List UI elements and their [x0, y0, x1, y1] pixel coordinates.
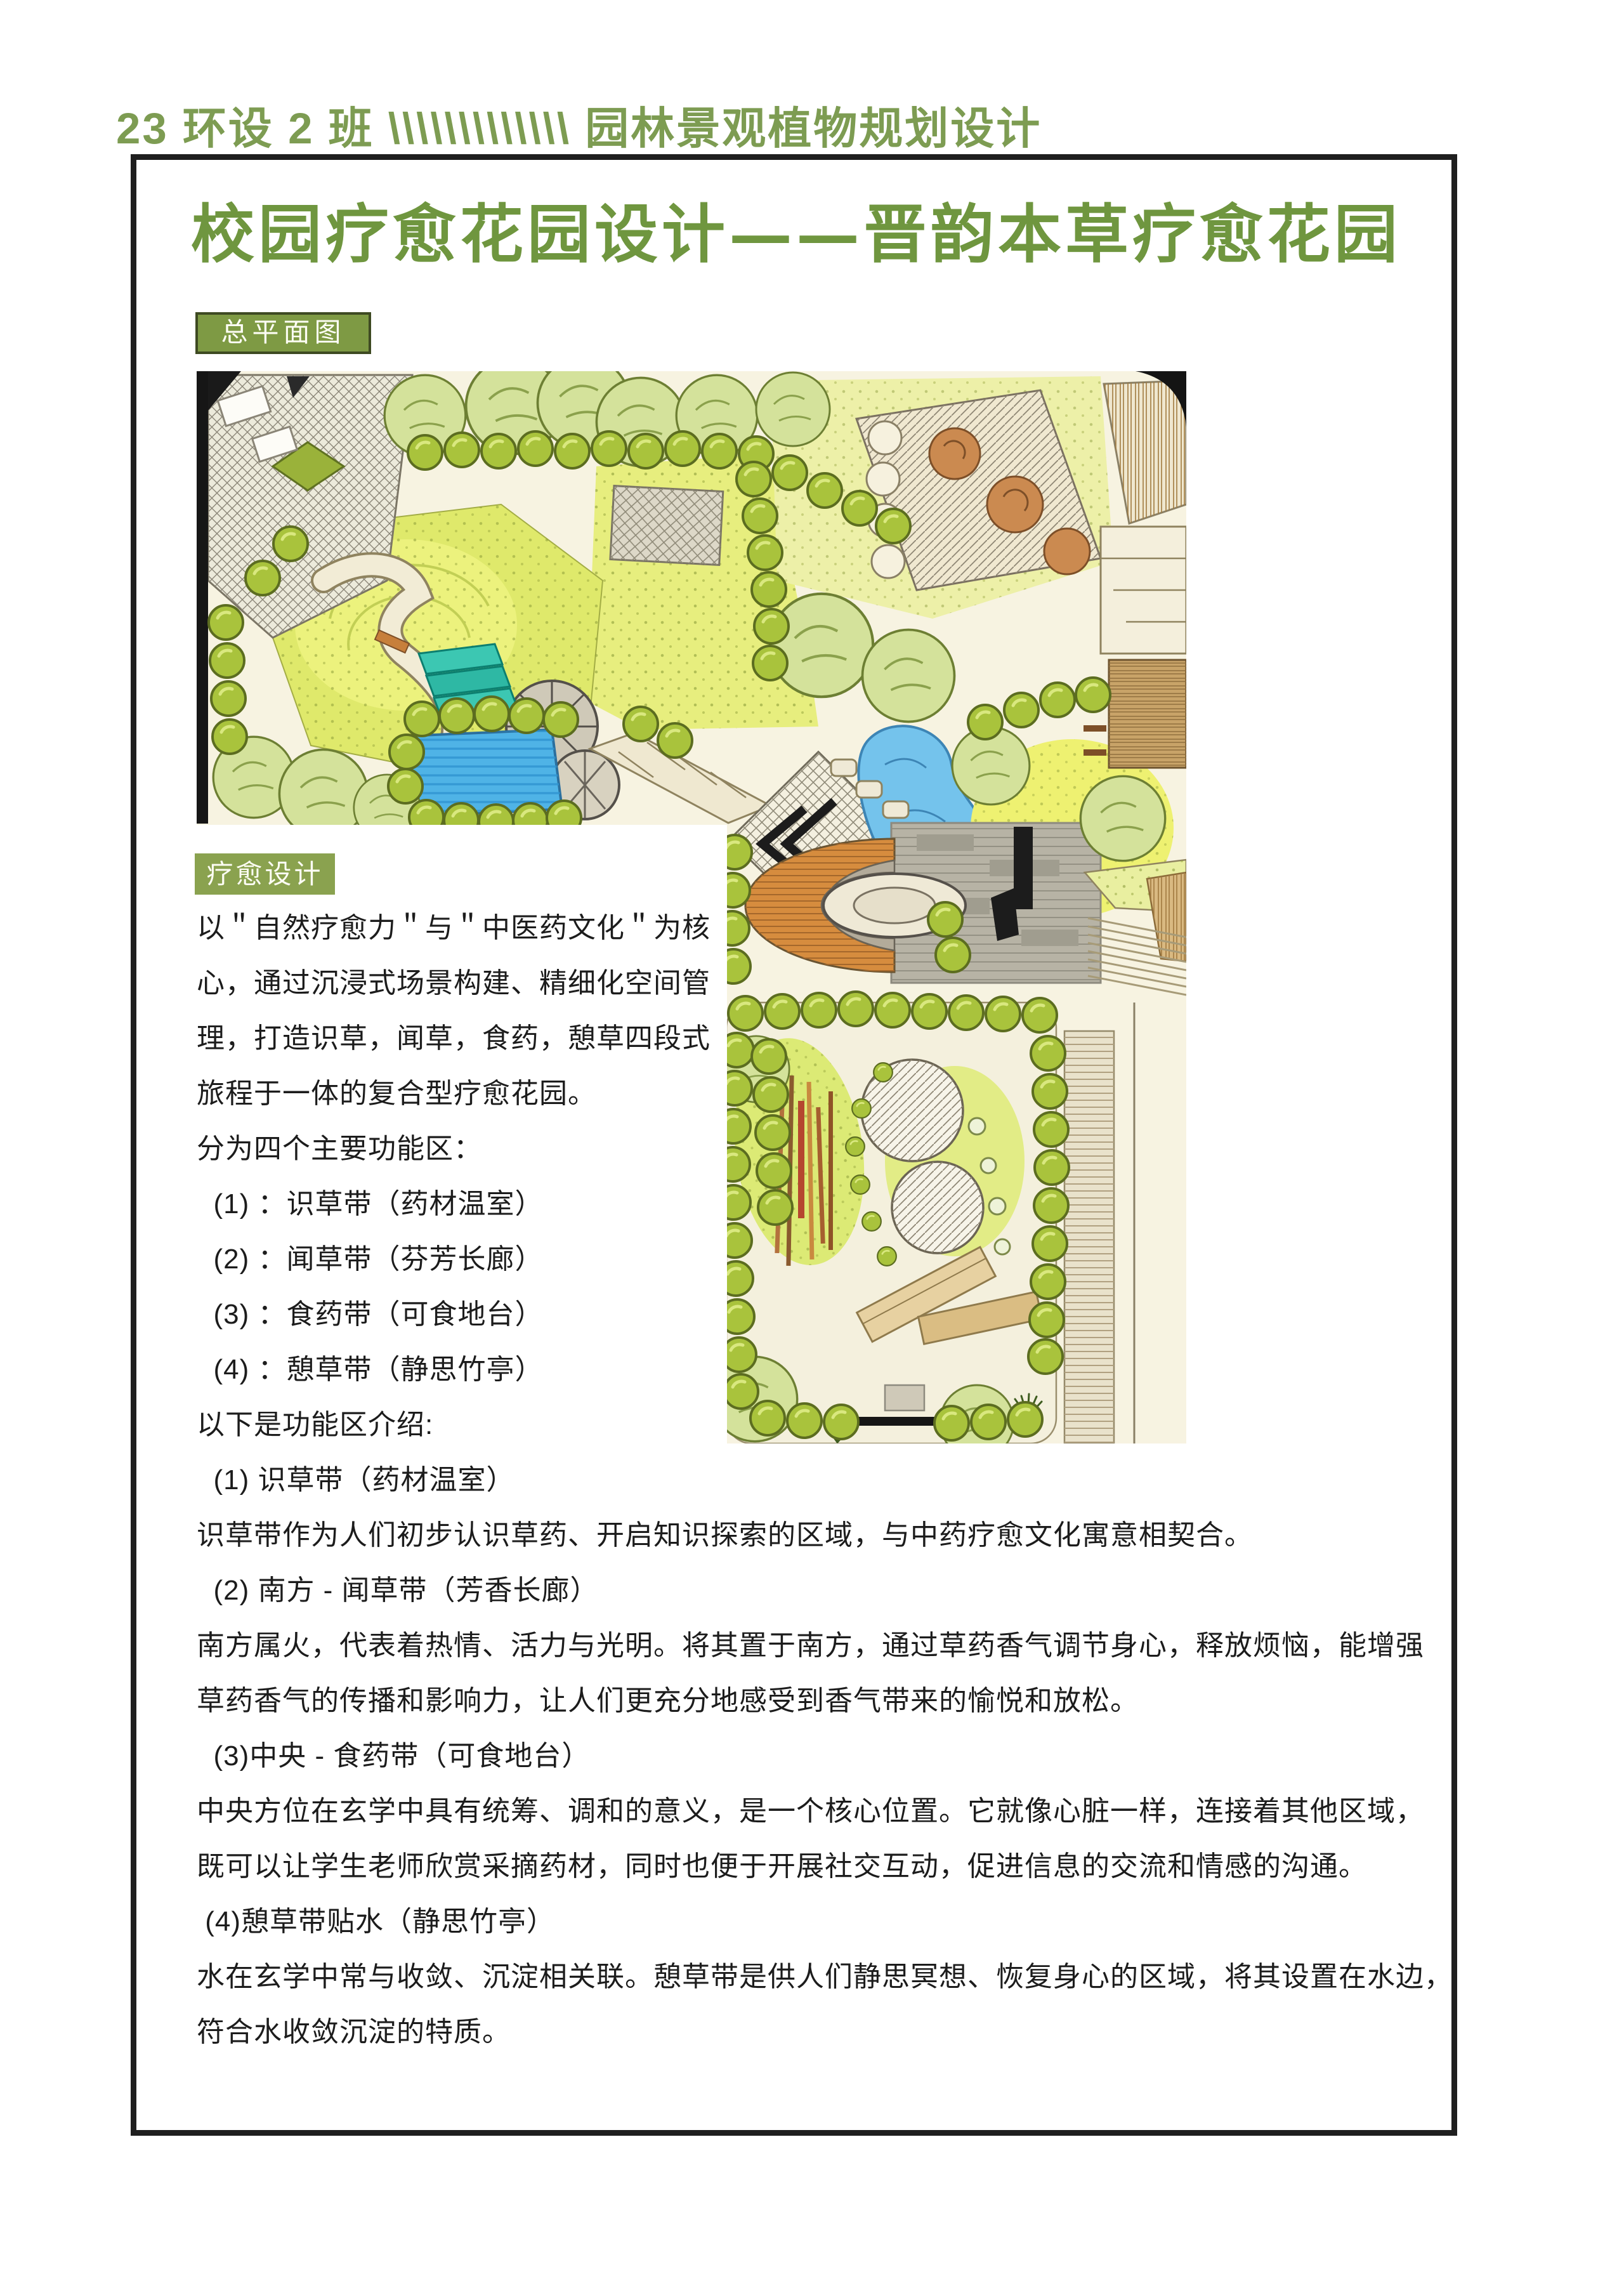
text-line: 草药香气的传播和影响力，让人们更充分地感受到香气带来的愉悦和放松。 — [197, 1673, 1462, 1728]
text-line: 识草带作为人们初步认识草药、开启知识探索的区域，与中药疗愈文化寓意相契合。 — [197, 1508, 1462, 1563]
text-line: (3) ：食药带（可食地台） — [197, 1287, 1462, 1342]
text-line: (4) ：憩草带（静思竹亭） — [197, 1342, 1462, 1397]
text-line: 理，打造识草，闻草，食药，憩草四段式 — [197, 1011, 1462, 1066]
page-header: 23 环设 2 班 \\\\\\\\\\\\\ 园林景观植物规划设计 — [116, 93, 1042, 156]
text-line: 既可以让学生老师欣赏采摘药材，同时也便于开展社交互动，促进信息的交流和情感的沟通… — [197, 1839, 1462, 1894]
text-line: (2) 南方 - 闻草带（芳香长廊） — [197, 1563, 1462, 1618]
text-line: (1) 识草带（药材温室） — [197, 1452, 1462, 1508]
text-line: 南方属火，代表着热情、活力与光明。将其置于南方，通过草药香气调节身心，释放烦恼，… — [197, 1618, 1462, 1673]
text-line: 中央方位在玄学中具有统筹、调和的意义，是一个核心位置。它就像心脏一样，连接着其他… — [197, 1784, 1462, 1839]
text-line: 分为四个主要功能区： — [197, 1121, 1462, 1176]
text-line: (1) ：识草带（药材温室） — [197, 1176, 1462, 1232]
text-line: 以下是功能区介绍: — [197, 1397, 1462, 1452]
text-line: (3)中央 - 食药带（可食地台） — [197, 1728, 1462, 1784]
text-line: 旅程于一体的复合型疗愈花园。 — [197, 1066, 1462, 1121]
text-line: (2) ：闻草带（芬芳长廊） — [197, 1232, 1462, 1287]
section-label-master-plan: 总平面图 — [195, 312, 371, 354]
text-line: 心，通过沉浸式场景构建、精细化空间管 — [197, 956, 1462, 1011]
text-line: 以＂自然疗愈力＂与＂中医药文化＂为核 — [197, 900, 1462, 956]
text-line: 符合水收敛沉淀的特质。 — [197, 2004, 1462, 2060]
body-text: 以＂自然疗愈力＂与＂中医药文化＂为核心，通过沉浸式场景构建、精细化空间管理，打造… — [197, 900, 1462, 2060]
document-page: 23 环设 2 班 \\\\\\\\\\\\\ 园林景观植物规划设计 校园疗愈花… — [0, 0, 1624, 2295]
text-line: 水在玄学中常与收敛、沉淀相关联。憩草带是供人们静思冥想、恢复身心的区域，将其设置… — [197, 1949, 1462, 2004]
section-label-healing-design: 疗愈设计 — [195, 853, 335, 895]
text-line: (4)憩草带贴水（静思竹亭） — [197, 1894, 1462, 1949]
page-title: 校园疗愈花园设计——晋韵本草疗愈花园 — [133, 183, 1459, 275]
